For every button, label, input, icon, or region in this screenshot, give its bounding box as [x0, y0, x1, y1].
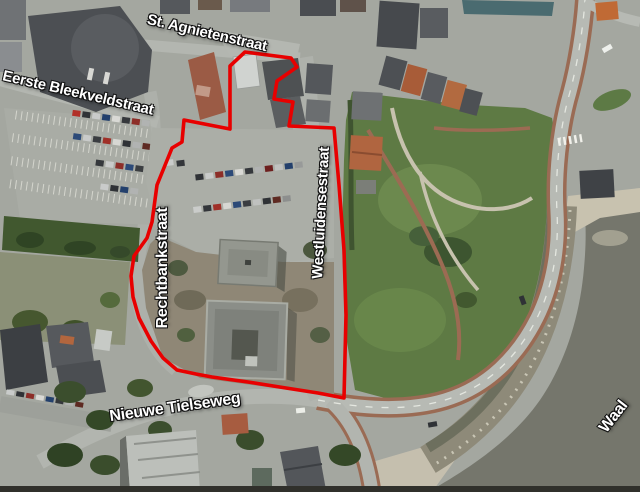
site-building-south	[205, 301, 298, 382]
aerial-map: St. Agnietenstraat Eerste Bleekveldstraa…	[0, 0, 640, 492]
house-bottom-center	[280, 446, 326, 492]
aerial-photo	[0, 0, 640, 492]
photo-edge-strip	[0, 486, 640, 492]
red-roof-house	[221, 413, 248, 435]
public-parking-lot	[4, 102, 162, 225]
site-building-north	[218, 240, 287, 292]
gabled-building	[120, 430, 200, 492]
